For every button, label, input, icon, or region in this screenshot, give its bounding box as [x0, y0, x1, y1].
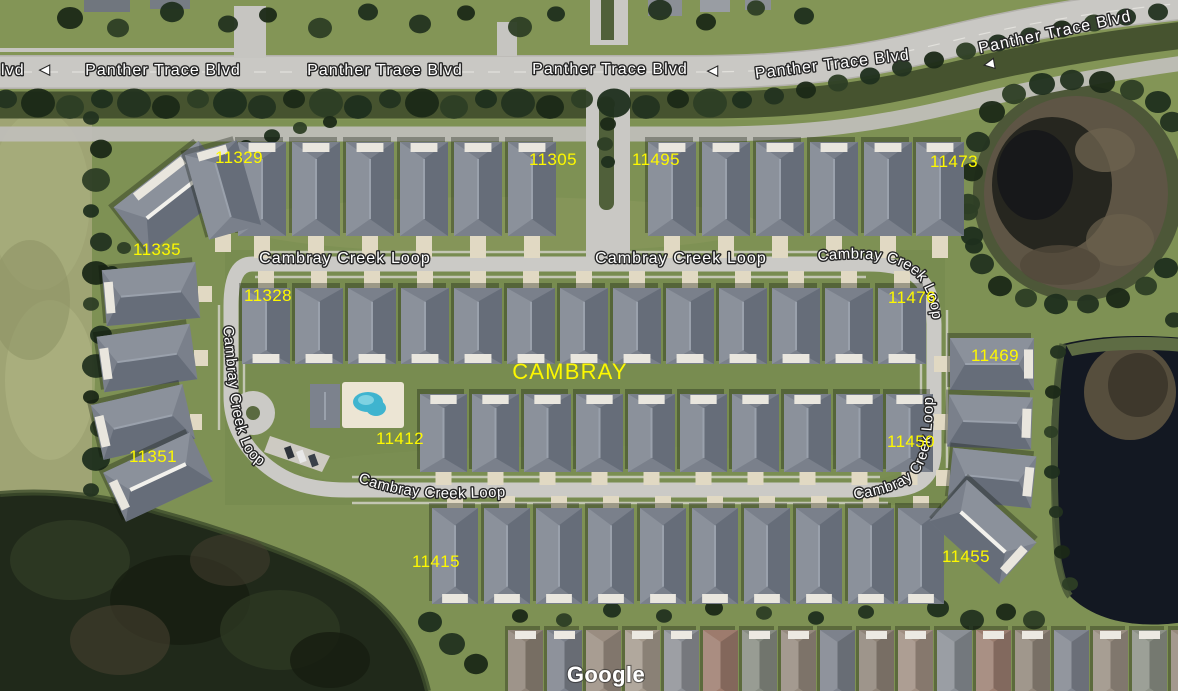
tree — [756, 606, 772, 620]
tree — [808, 611, 824, 625]
tree — [56, 95, 84, 119]
tree — [501, 89, 535, 118]
house-roof — [817, 626, 855, 691]
tree — [1148, 4, 1168, 21]
tree — [1044, 426, 1058, 438]
tree — [248, 95, 276, 119]
house-number-label: 11495 — [632, 150, 680, 169]
house-number-label: 11328 — [244, 286, 292, 305]
house-roof — [1051, 626, 1089, 691]
tree — [1089, 71, 1115, 93]
house-roof — [822, 283, 873, 364]
tree — [90, 233, 112, 252]
house-roof — [98, 257, 200, 326]
house-number-label: 11469 — [971, 346, 1019, 365]
tree — [1077, 295, 1099, 314]
tree — [597, 96, 615, 111]
tree — [457, 5, 475, 20]
tree — [747, 0, 765, 15]
tree — [1045, 385, 1061, 399]
clubhouse — [310, 384, 340, 428]
entrance-road — [586, 0, 630, 262]
house-roof — [289, 137, 340, 236]
house-number-label: 11329 — [215, 148, 263, 167]
tree — [187, 90, 209, 109]
area-label: CAMBRAY — [512, 359, 628, 384]
street-label: Panther Trace Blvd — [85, 62, 241, 79]
house-roof — [807, 137, 858, 236]
tree — [83, 297, 99, 311]
driveway — [524, 236, 540, 258]
tree — [21, 89, 55, 118]
tree — [924, 52, 944, 69]
tree — [464, 654, 488, 674]
tree — [440, 95, 468, 119]
tree — [648, 0, 672, 20]
driveway — [436, 472, 452, 485]
house-roof — [1168, 626, 1178, 691]
tree — [597, 137, 613, 151]
tree — [970, 254, 994, 274]
driveway — [488, 472, 504, 485]
house-roof — [585, 503, 634, 604]
tree — [966, 132, 990, 152]
house-roof — [573, 389, 623, 472]
house-roof — [345, 283, 396, 364]
house-number-label: 11335 — [133, 240, 181, 259]
tree — [1135, 277, 1157, 296]
driveway — [852, 472, 868, 485]
driveway — [540, 472, 556, 485]
tree — [107, 19, 129, 38]
house-roof — [689, 503, 738, 604]
driveway — [772, 236, 788, 258]
house-roof — [292, 283, 343, 364]
tree — [1120, 80, 1144, 100]
tree — [90, 140, 112, 159]
tree — [571, 90, 593, 109]
house-number-label: 11450 — [887, 432, 935, 451]
tree — [1060, 70, 1084, 90]
house-number-label: 11455 — [942, 547, 990, 566]
driveway — [932, 236, 948, 258]
house-roof — [753, 137, 804, 236]
tree — [632, 95, 660, 119]
pond-top-right — [973, 85, 1178, 301]
tree — [508, 17, 532, 37]
house-roof — [398, 283, 449, 364]
house-roof — [934, 626, 972, 691]
tree — [547, 6, 565, 21]
driveway — [194, 350, 208, 366]
house-roof — [417, 389, 467, 472]
house-roof — [397, 137, 448, 236]
house-number-label: 11473 — [930, 152, 978, 171]
house-roof — [610, 283, 661, 364]
tree — [996, 604, 1016, 621]
tree — [83, 483, 99, 497]
tree — [409, 15, 431, 34]
tree — [536, 95, 564, 119]
house-roof — [505, 626, 543, 691]
tree — [309, 89, 343, 118]
house-roof — [778, 626, 816, 691]
tree — [152, 95, 180, 119]
tree — [91, 90, 113, 109]
google-watermark: Google — [567, 662, 645, 687]
tree — [794, 8, 814, 25]
tree — [344, 95, 372, 119]
tree — [732, 92, 752, 109]
tree — [213, 89, 247, 118]
house-roof — [469, 389, 519, 472]
tree — [1062, 577, 1078, 591]
house-roof — [1129, 626, 1167, 691]
house-roof — [1012, 626, 1050, 691]
tree — [764, 88, 784, 105]
direction-arrow-icon: ◀ — [41, 63, 50, 76]
tree — [1049, 506, 1063, 518]
tree — [1145, 91, 1171, 113]
house-roof — [769, 283, 820, 364]
house-roof — [856, 626, 894, 691]
house-roof — [699, 137, 750, 236]
tree — [283, 90, 305, 109]
house-roof — [481, 503, 530, 604]
house-roof — [944, 389, 1033, 449]
house-number-label: 11305 — [529, 150, 577, 169]
satellite-imagery: CAMBRAY Google lvdPanther Trace BlvdPant… — [0, 0, 1178, 691]
house-roof — [861, 137, 912, 236]
house-roof — [451, 137, 502, 236]
house-roof — [677, 389, 727, 472]
tree — [82, 168, 110, 192]
tree — [1029, 73, 1055, 95]
tree — [965, 238, 983, 253]
tree — [667, 90, 689, 109]
tree — [405, 89, 439, 118]
house-roof — [700, 626, 738, 691]
direction-arrow-icon: ◀ — [709, 64, 718, 77]
house-roof — [533, 503, 582, 604]
tree — [693, 89, 727, 118]
tree — [860, 68, 880, 85]
tree — [293, 122, 307, 134]
tree — [379, 90, 401, 109]
driveway — [470, 236, 486, 258]
street-label: Panther Trace Blvd — [532, 61, 688, 78]
tree — [1050, 345, 1066, 359]
house-roof — [716, 283, 767, 364]
tree — [308, 18, 332, 38]
tree — [656, 609, 672, 623]
house-roof — [739, 626, 777, 691]
tree — [696, 14, 716, 31]
driveway — [748, 472, 764, 485]
driveway — [592, 472, 608, 485]
tree — [1044, 294, 1068, 314]
house-roof — [793, 503, 842, 604]
tree — [1015, 289, 1037, 308]
tree — [160, 2, 184, 22]
tree — [828, 75, 848, 92]
tree — [83, 111, 99, 125]
house-roof — [895, 626, 933, 691]
house-number-label: 11351 — [129, 447, 177, 466]
tree — [117, 89, 151, 118]
street-label: Cambray Creek Loop — [595, 250, 767, 267]
tree — [858, 605, 874, 619]
house-roof — [845, 503, 894, 604]
street-label: Panther Trace Blvd — [307, 62, 463, 79]
tree — [988, 276, 1012, 296]
tree — [512, 609, 528, 623]
driveway — [800, 472, 816, 485]
tree — [1154, 258, 1178, 278]
house-roof — [1090, 626, 1128, 691]
tree — [83, 204, 99, 218]
house-roof — [663, 283, 714, 364]
house-roof — [729, 389, 779, 472]
tree — [1002, 84, 1026, 104]
house-roof — [637, 503, 686, 604]
tree — [323, 116, 337, 128]
tree — [556, 613, 572, 627]
street-label: Cambray Creek Loop — [259, 250, 431, 267]
tree — [218, 16, 238, 33]
driveway — [644, 472, 660, 485]
tree — [57, 7, 83, 29]
house-roof — [625, 389, 675, 472]
house-roof — [504, 283, 555, 364]
tree — [956, 43, 976, 60]
house-roof — [521, 389, 571, 472]
house-roof — [451, 283, 502, 364]
driveway — [696, 472, 712, 485]
house-roof — [661, 626, 699, 691]
house-number-label: 11412 — [376, 429, 424, 448]
house-roof — [741, 503, 790, 604]
house-number-label: 11415 — [412, 552, 460, 571]
tree — [475, 90, 497, 109]
house-roof — [557, 283, 608, 364]
tree — [796, 82, 816, 99]
house-roof — [833, 389, 883, 472]
street-label: lvd — [1, 62, 25, 79]
tree — [418, 612, 442, 632]
map-canvas[interactable]: CAMBRAY Google lvdPanther Trace BlvdPant… — [0, 0, 1178, 691]
tree — [979, 101, 1005, 123]
tree — [1106, 288, 1130, 308]
tree — [1054, 545, 1070, 559]
tree — [603, 602, 621, 617]
house-roof — [343, 137, 394, 236]
tree — [259, 7, 277, 22]
community-pool — [310, 382, 404, 428]
house-number-label: 11476 — [888, 288, 936, 307]
house-roof — [973, 626, 1011, 691]
tree — [439, 633, 465, 655]
driveway — [198, 286, 212, 302]
tree — [117, 242, 131, 254]
tree — [601, 156, 615, 168]
tree — [600, 117, 616, 131]
tree — [358, 4, 378, 21]
house-roof — [781, 389, 831, 472]
tree — [1044, 465, 1060, 479]
